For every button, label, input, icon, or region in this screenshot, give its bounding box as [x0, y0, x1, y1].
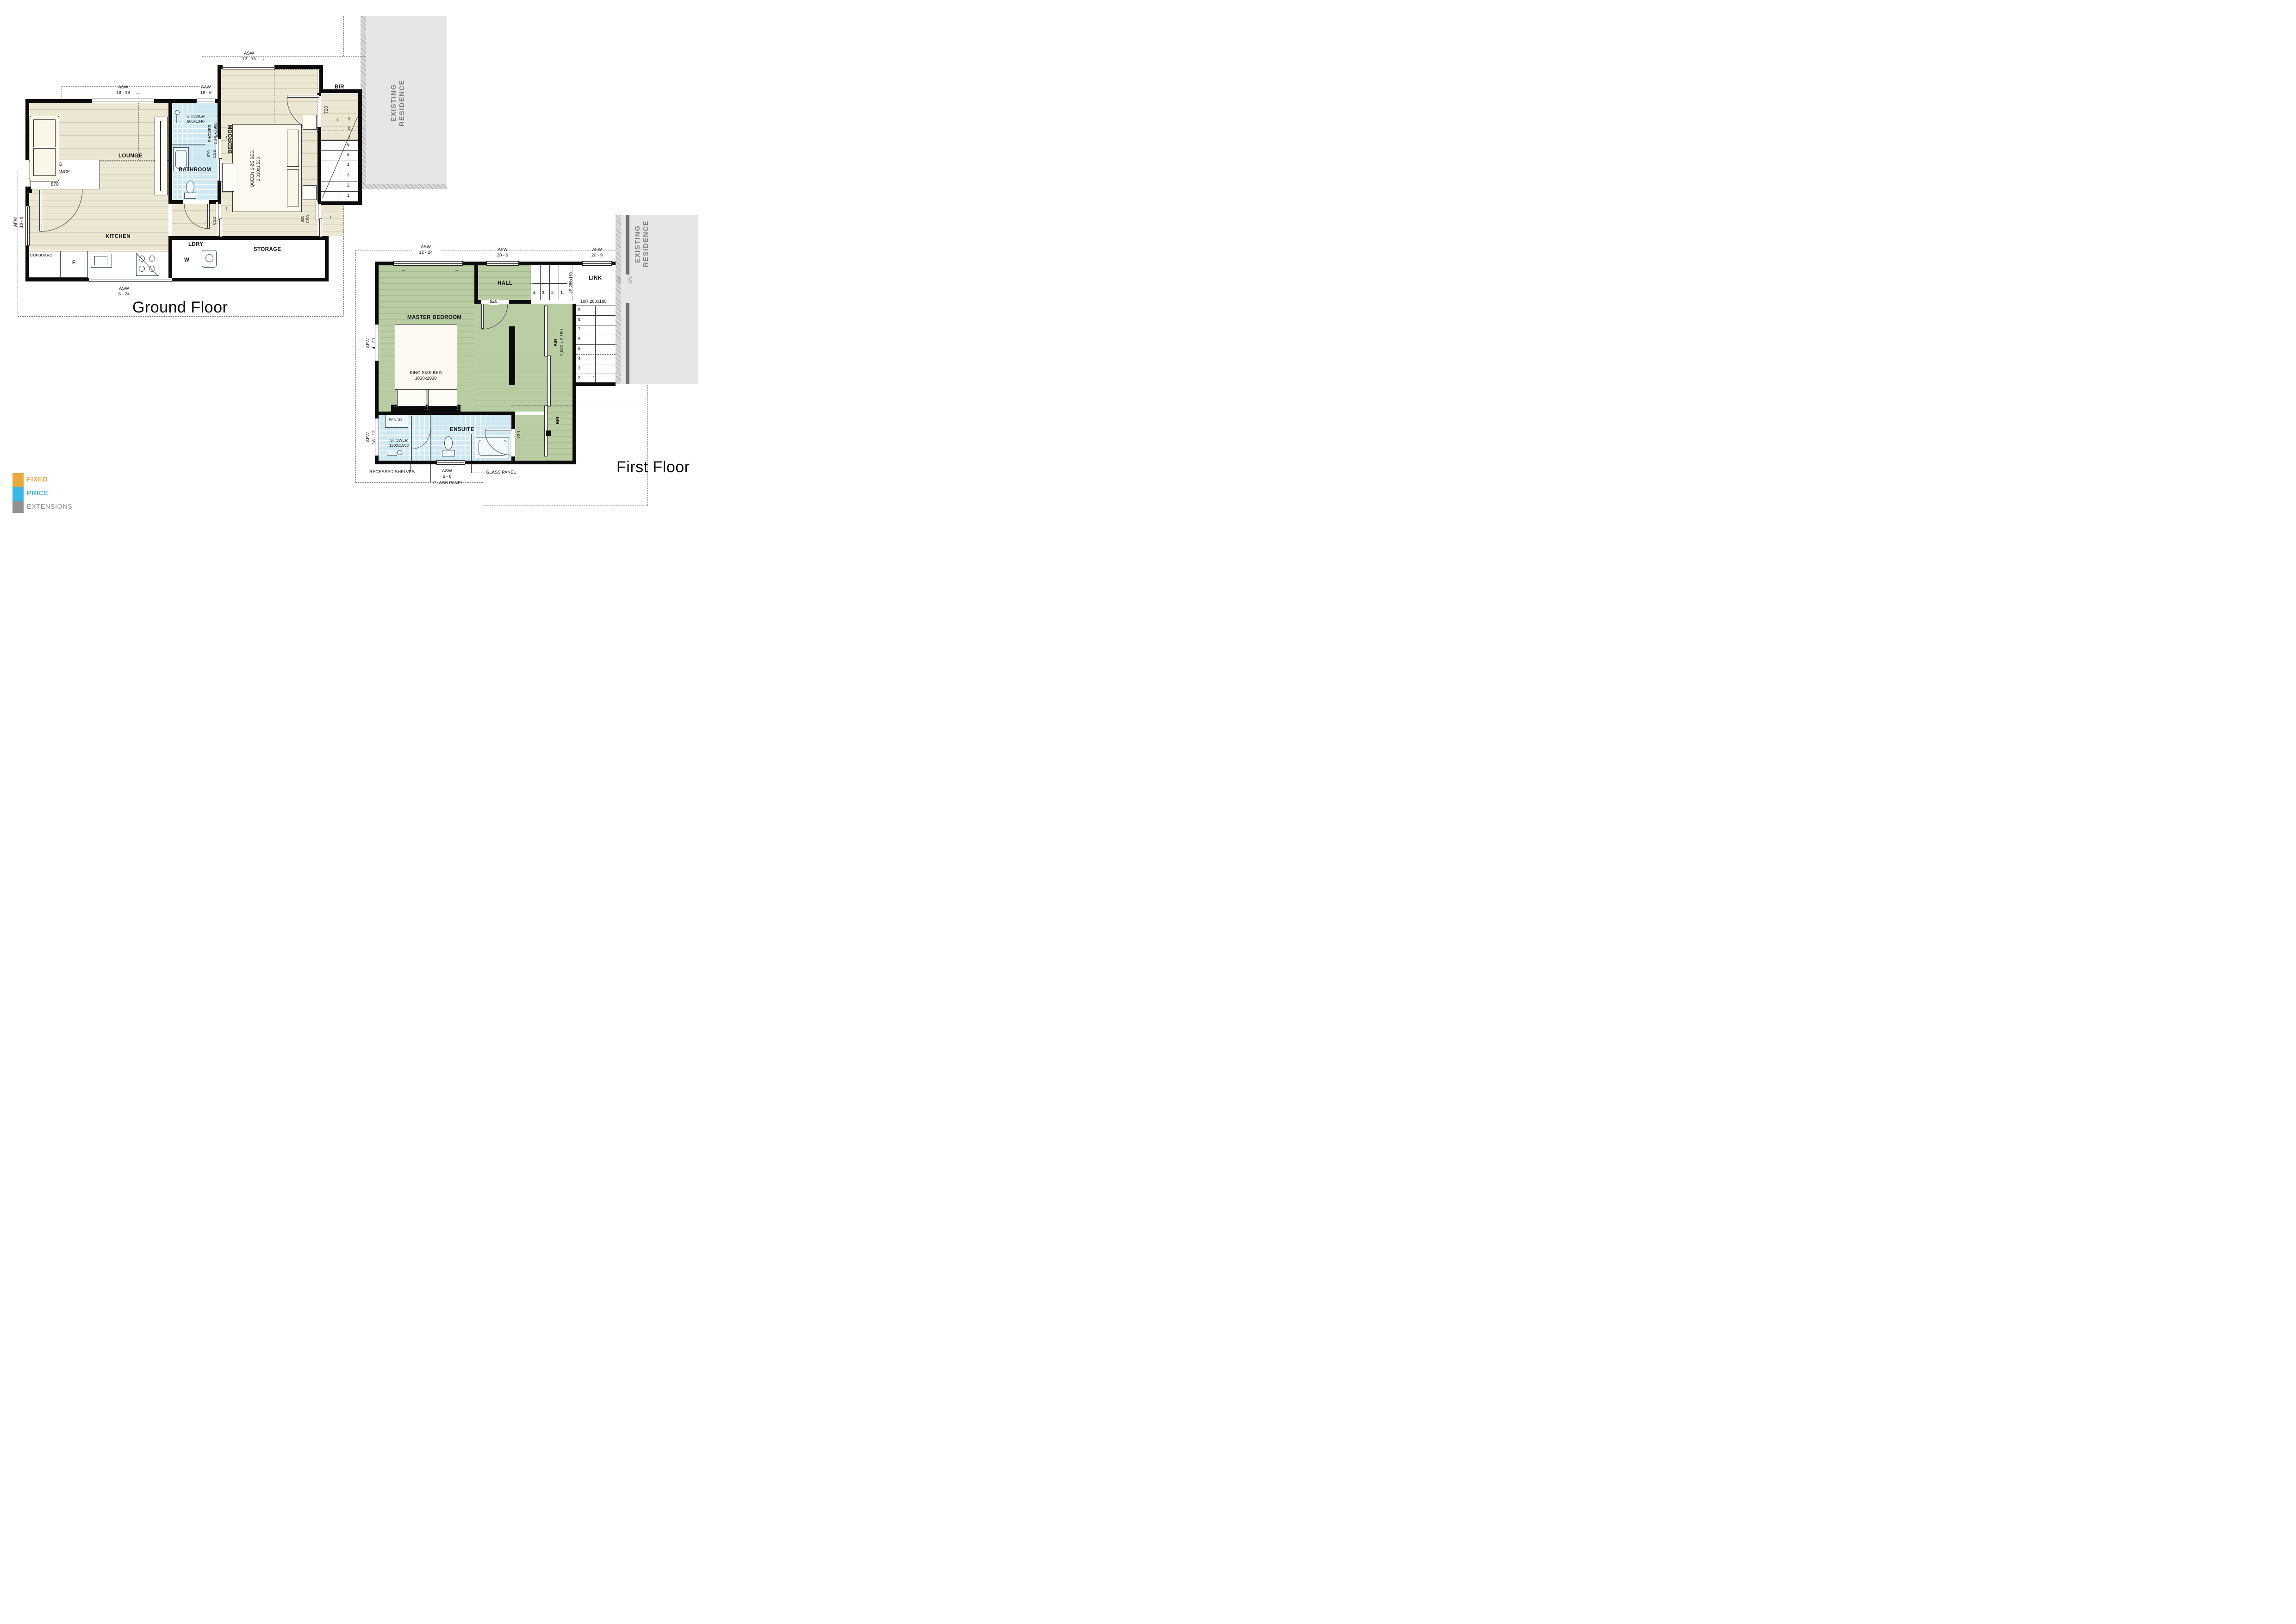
stair-divider	[549, 265, 550, 300]
window-afw-20-9-left	[486, 261, 519, 266]
setback-line	[355, 482, 483, 483]
bathroom-door-opening	[183, 200, 209, 204]
stair-step	[576, 335, 616, 344]
stair-number: 2.	[578, 375, 582, 380]
wall	[375, 461, 576, 464]
setback-line	[202, 56, 366, 57]
room-label-lounge: LOUNGE	[118, 153, 143, 159]
logo-text-extensions: EXTENSIONS	[27, 503, 72, 511]
window-label-afw-4-20: AFW 4 - 20	[366, 330, 377, 357]
stairs-10r-label: 10R 280x180	[580, 299, 607, 305]
ensuite-door-swing	[485, 431, 511, 455]
wall	[572, 382, 616, 386]
stair-divider	[559, 265, 559, 300]
cooktop-burner	[139, 266, 145, 272]
floor-plan-canvas: EXISTING RESIDENCE	[0, 0, 726, 513]
wall	[319, 89, 362, 93]
arrow-up-icon: ↑	[409, 416, 411, 420]
stair-number: 6.	[578, 337, 582, 341]
room-label-bir: BIR	[335, 84, 344, 90]
stair-number: 2.	[551, 290, 555, 295]
setback-line	[343, 16, 344, 56]
queen-bed-label: QUEEN SIZE BED 2.030x1.530	[250, 134, 261, 204]
stair-step	[576, 364, 616, 374]
stair-number: 8.	[578, 317, 582, 322]
bir-sliding-panel	[544, 306, 548, 356]
setback-line	[343, 201, 344, 316]
vanity-basin	[175, 150, 187, 169]
setback-line	[483, 506, 647, 506]
setback-line	[18, 171, 18, 316]
arrow-up-icon: ↑	[330, 215, 332, 220]
window-label-asw-12-15: ASW12 - 15	[235, 51, 263, 62]
stair-number: 8.	[348, 126, 352, 131]
window-afw-20-9-right	[582, 261, 612, 266]
stair-step	[576, 315, 616, 325]
window-label-asw-18-18: ASW18 - 18	[109, 85, 137, 96]
setback-line	[355, 250, 616, 250]
stair-number: 1.	[560, 290, 564, 295]
stair-step	[576, 306, 616, 315]
logo-text-price: PRICE	[27, 490, 49, 497]
window-asw-12-24	[393, 261, 463, 266]
existing-residence-wall	[626, 215, 629, 275]
stair-open-edge	[572, 265, 572, 300]
bathroom-door-swing	[184, 204, 209, 229]
stair-number: 9.	[578, 307, 582, 312]
shower-door-swing	[411, 430, 430, 449]
wall	[379, 412, 515, 415]
ensuite-door-width: 720	[516, 427, 523, 443]
entrance-width-label: 870	[51, 182, 59, 188]
leader-line	[471, 464, 472, 473]
shower-rail	[176, 115, 177, 123]
stair-step	[576, 344, 616, 354]
shower-label: SHOWER900x1340	[182, 114, 209, 124]
stair-number: 7.	[578, 327, 582, 331]
ceiling-line	[138, 103, 139, 160]
winder-step-line	[321, 131, 358, 131]
logo-square-blue	[12, 487, 24, 501]
setback-line	[483, 482, 483, 506]
cupboard-label: CUPBOARD	[30, 253, 52, 258]
existing-residence-wall	[626, 303, 629, 384]
wall	[319, 65, 323, 93]
arrow-left-icon: ←	[262, 57, 267, 62]
room-label-kitchen: KITCHEN	[106, 234, 131, 239]
robe-overhead	[427, 406, 458, 410]
stair-number: 3.	[542, 290, 546, 295]
arrow-up-icon: ↑	[324, 206, 327, 212]
robe-dash-line	[511, 405, 572, 406]
stair-number: 5.	[578, 346, 582, 351]
ground-floor-title: Ground Floor	[132, 299, 228, 317]
dresser	[222, 163, 234, 192]
leader-line	[471, 473, 484, 473]
window-asw-12-15	[222, 65, 275, 69]
robe-overhead	[394, 406, 424, 410]
logo-square-gray	[12, 501, 24, 513]
wall	[325, 236, 329, 281]
washer-label: W	[184, 257, 189, 263]
existing-residence-wall-hatch	[616, 215, 621, 384]
stair-step	[576, 325, 616, 335]
entrance-door-swing	[41, 190, 82, 231]
arrow-down-icon: ↓	[592, 373, 595, 378]
window-afw-18-8	[25, 206, 30, 246]
wall	[25, 99, 29, 160]
bed-pillow	[287, 130, 299, 167]
stairs-4r-label: 4R 280x180	[568, 267, 573, 299]
glass-panel-label-bottom: GLASS PANEL	[433, 481, 463, 486]
bench-label: BENCH	[389, 418, 402, 423]
cooktop-burner	[149, 256, 155, 262]
arrow-right-icon: →	[451, 464, 455, 468]
toilet-bowl	[186, 181, 194, 194]
stair-step	[576, 374, 616, 382]
setback-line	[647, 385, 648, 506]
window-label-asw-12-24: ASW12 - 24	[412, 244, 440, 256]
stair-number: 9.	[348, 117, 352, 121]
glass-panel-line	[430, 415, 431, 461]
arrow-left-icon: ←	[136, 91, 141, 96]
wall	[168, 99, 172, 204]
existing-residence-wall-hatch	[361, 184, 447, 189]
setback-line	[355, 250, 356, 482]
stair-open-edge	[575, 265, 575, 300]
stair-number: 5.	[347, 152, 351, 157]
arrow-up-icon: ↑	[225, 206, 228, 212]
recessed-shelves-label: RECESSED SHELVES	[369, 469, 415, 475]
king-bed-label: KING SIZE BED1830x2030	[403, 370, 449, 381]
shower-rose	[397, 450, 402, 455]
bir-sliding-panel	[548, 356, 551, 406]
stair-direction-line	[533, 283, 567, 284]
arrow-left-icon: ←	[454, 268, 460, 273]
bir-label-lower: BIR	[555, 413, 561, 427]
shower-size-vertical-label: SHOWER 1.340x0.900	[207, 111, 218, 156]
window-asw-6-8	[436, 460, 465, 465]
existing-residence-label: EXISTING RESIDENCE	[634, 217, 650, 271]
room-label-storage: STORAGE	[254, 247, 281, 252]
existing-residence-area	[621, 215, 698, 384]
stair-number: 6.	[347, 142, 351, 147]
existing-residence-label: EXISTING RESIDENCE	[390, 72, 406, 134]
stair-divider	[595, 306, 596, 382]
bed-base	[428, 390, 457, 406]
stair-number: 3.	[578, 366, 582, 370]
bedroom-csd-panel	[316, 202, 318, 220]
stair-divider	[340, 140, 340, 201]
cooktop-burner	[149, 266, 155, 272]
stair-number: 2.	[347, 183, 351, 187]
window-asw-18-18	[92, 99, 155, 103]
room-label-master-bedroom: MASTER BEDROOM	[407, 315, 461, 320]
glass-panel-line	[471, 434, 472, 461]
stair-step	[576, 354, 616, 364]
leader-line	[430, 464, 431, 482]
bir-door-width-label: 720	[324, 98, 330, 121]
window-label-afw-20-9-left: AFW20 - 9	[489, 247, 516, 258]
room-label-ensuite: ENSUITE	[450, 427, 474, 432]
shower-screen	[172, 144, 205, 145]
wall	[218, 236, 329, 240]
arrow-left-icon: ←	[529, 281, 535, 286]
wall	[317, 201, 362, 205]
link-offset-dim: 875	[617, 272, 622, 288]
hall-door-swing	[482, 304, 508, 329]
bir-label: BIR 2,060 x 2,150	[554, 319, 565, 367]
sofa-cushion	[33, 119, 56, 147]
toilet-bowl	[444, 436, 453, 450]
stair-number: 1.	[347, 193, 351, 198]
ensuite-door-opening	[511, 429, 515, 456]
window-label-afw-18-8: AFW 18 - 8	[13, 204, 25, 241]
toilet-cistern	[184, 193, 196, 199]
bed-base	[397, 390, 426, 406]
bed-pillow	[287, 169, 299, 206]
arrow-up-icon: ↑	[336, 118, 339, 123]
logo-text-fixed: FIXED	[27, 476, 48, 483]
wall	[474, 262, 478, 300]
stair-divider	[540, 265, 541, 300]
existing-residence-area	[366, 16, 447, 184]
room-label-bedroom: BEDROOM	[228, 119, 233, 158]
wall	[168, 236, 221, 240]
setback-line	[576, 402, 647, 402]
passage-csd-panel	[219, 219, 222, 237]
shower-taps	[387, 452, 397, 456]
window-label-afw-20-9-right: AFW20 - 9	[583, 247, 611, 258]
room-label-link: LINK	[589, 275, 602, 281]
laundry-tub-bowl	[205, 254, 213, 262]
stair-number: 4.	[533, 290, 536, 295]
first-floor-title: First Floor	[616, 458, 690, 476]
window-label-asw-6-8: ASW6 - 8	[434, 468, 460, 480]
setback-line	[62, 86, 62, 99]
storage-floor	[221, 240, 325, 278]
shower-rose	[175, 110, 180, 115]
window-aaw-18-6	[196, 99, 216, 103]
wall	[358, 89, 362, 205]
wall	[25, 278, 329, 281]
room-label-bathroom: BATHROOM	[179, 167, 211, 173]
glass-panel-label-right: GLASS PANEL	[486, 470, 516, 475]
link-offset-dim: 875	[628, 272, 634, 288]
bedroom-csd-panel	[319, 219, 322, 237]
stair-number: 4.	[347, 162, 351, 167]
wall-stub	[509, 326, 515, 385]
window-label-asw-6-24: ASW6 - 24	[110, 286, 138, 297]
fridge-label: F	[72, 260, 75, 266]
window-label-aaw-18-6: AAW18 - 6	[192, 85, 220, 96]
wall	[168, 236, 172, 281]
stair-number: 3.	[347, 173, 351, 177]
arrow-right-icon: →	[401, 268, 406, 273]
stair-number: 4.	[578, 356, 582, 361]
ensuite-shower-label: SHOWER1300x1500	[384, 438, 414, 448]
window-label-afw-18-12: AFW 18 - 12	[366, 424, 377, 451]
setback-line	[616, 447, 647, 447]
toilet-cistern	[442, 450, 455, 456]
sofa-cushion	[33, 148, 56, 176]
tv-screen	[160, 121, 161, 191]
kitchen-sink-bowl	[94, 256, 107, 265]
room-label-hall: HALL	[498, 281, 512, 286]
bedside-table	[303, 185, 317, 200]
bir-panel-stub	[546, 431, 551, 436]
logo-square-orange	[12, 473, 24, 487]
tv-unit	[155, 117, 168, 195]
bedside-table	[303, 115, 317, 130]
window-asw-6-24	[89, 277, 172, 282]
laundry-label: LDRY	[188, 242, 203, 247]
